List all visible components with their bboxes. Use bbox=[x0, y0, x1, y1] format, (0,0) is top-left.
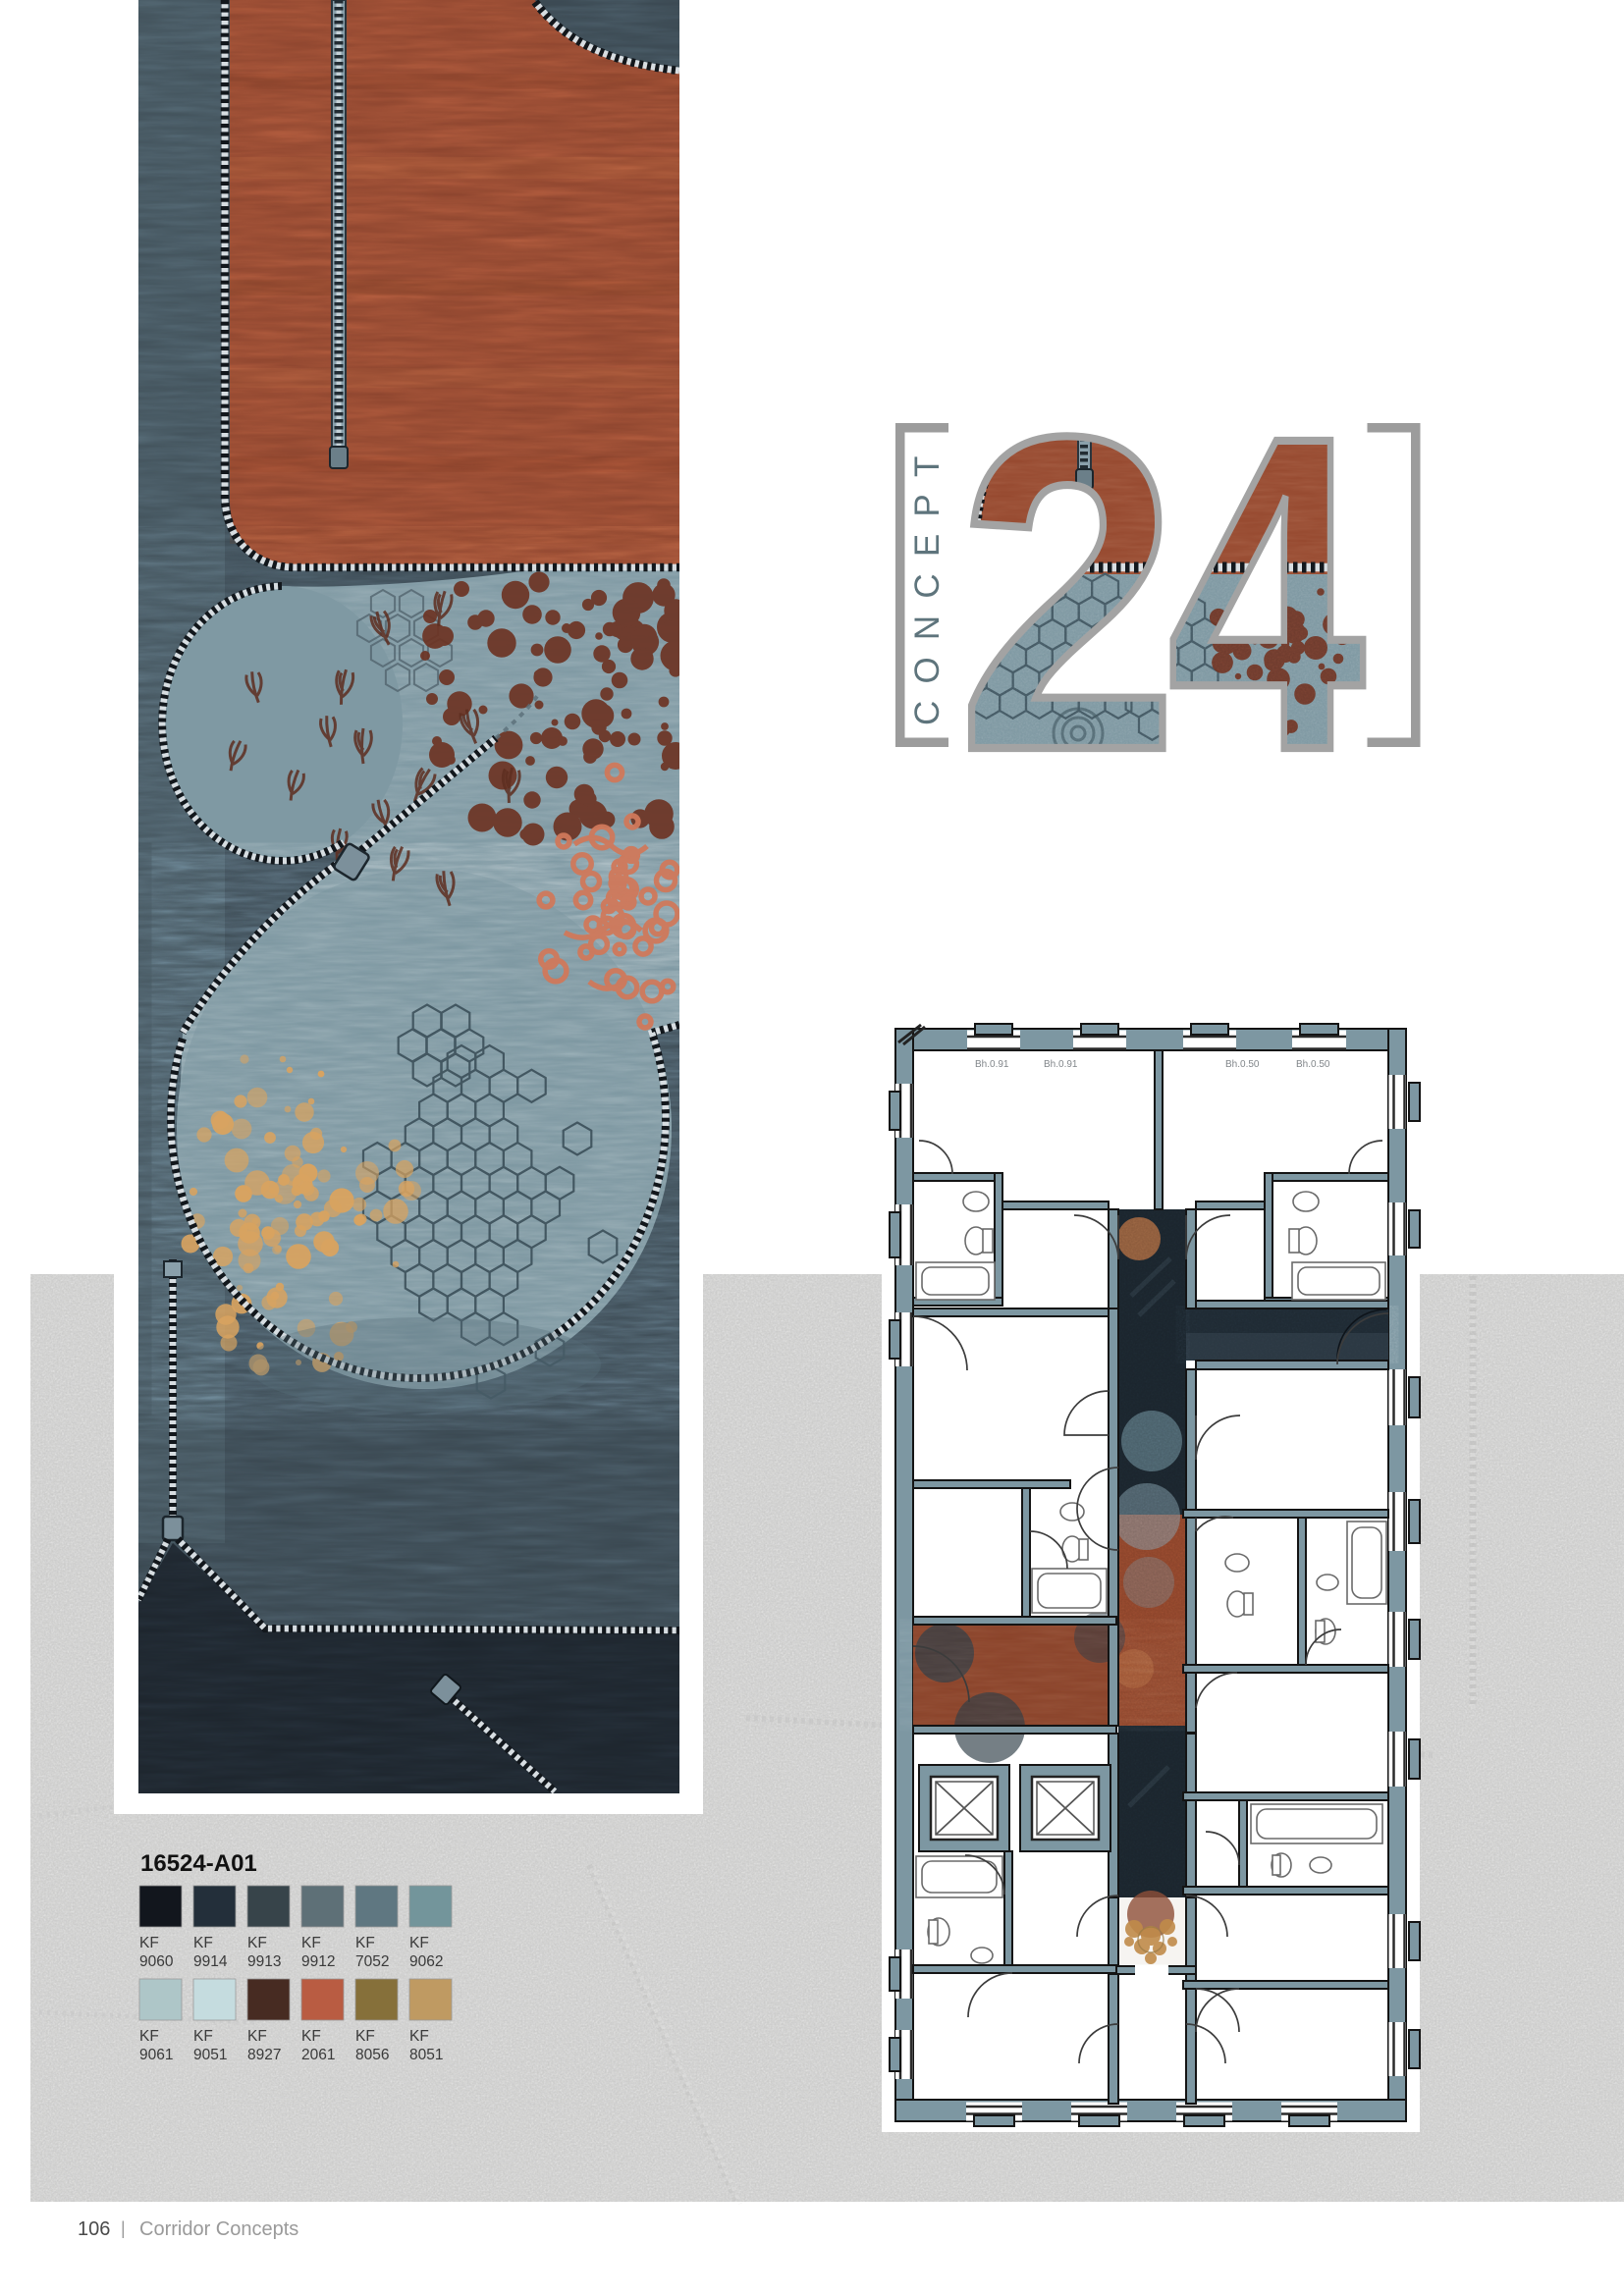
svg-text:KF: KF bbox=[193, 2028, 213, 2045]
svg-text:4: 4 bbox=[1167, 345, 1367, 843]
svg-text:16524-A01: 16524-A01 bbox=[140, 1850, 257, 1877]
svg-text:2: 2 bbox=[958, 346, 1179, 844]
svg-text:KF: KF bbox=[355, 2028, 375, 2045]
svg-text:2061: 2061 bbox=[301, 2047, 335, 2063]
svg-text:9060: 9060 bbox=[139, 1953, 174, 1970]
svg-text:Bh.0.91: Bh.0.91 bbox=[975, 1059, 1009, 1070]
svg-text:KF: KF bbox=[409, 2028, 429, 2045]
svg-text:8056: 8056 bbox=[355, 2047, 389, 2063]
svg-text:9062: 9062 bbox=[409, 1953, 443, 1970]
svg-text:7052: 7052 bbox=[355, 1953, 389, 1970]
svg-text:9051: 9051 bbox=[193, 2047, 227, 2063]
svg-text:Bh.0.91: Bh.0.91 bbox=[1044, 1059, 1078, 1070]
svg-text:8051: 8051 bbox=[409, 2047, 443, 2063]
svg-text:Corridor Concepts: Corridor Concepts bbox=[139, 2218, 298, 2240]
svg-text:KF: KF bbox=[301, 1935, 321, 1951]
svg-text:KF: KF bbox=[355, 1935, 375, 1951]
svg-text:KF: KF bbox=[247, 2028, 267, 2045]
svg-text:9912: 9912 bbox=[301, 1953, 335, 1970]
svg-text:KF: KF bbox=[301, 2028, 321, 2045]
svg-text:106: 106 bbox=[78, 2218, 110, 2240]
svg-text:KF: KF bbox=[247, 1935, 267, 1951]
svg-text:9061: 9061 bbox=[139, 2047, 173, 2063]
svg-text:KF: KF bbox=[139, 1935, 159, 1951]
svg-text:CONCEPT: CONCEPT bbox=[908, 439, 947, 725]
svg-text:KF: KF bbox=[193, 1935, 213, 1951]
svg-text:KF: KF bbox=[409, 1935, 429, 1951]
svg-text:8927: 8927 bbox=[247, 2047, 281, 2063]
svg-text:9914: 9914 bbox=[193, 1953, 228, 1970]
svg-text:9913: 9913 bbox=[247, 1953, 281, 1970]
svg-text:KF: KF bbox=[139, 2028, 159, 2045]
svg-text:Bh.0.50: Bh.0.50 bbox=[1225, 1059, 1260, 1070]
svg-text:|: | bbox=[121, 2218, 126, 2238]
svg-text:Bh.0.50: Bh.0.50 bbox=[1296, 1059, 1330, 1070]
